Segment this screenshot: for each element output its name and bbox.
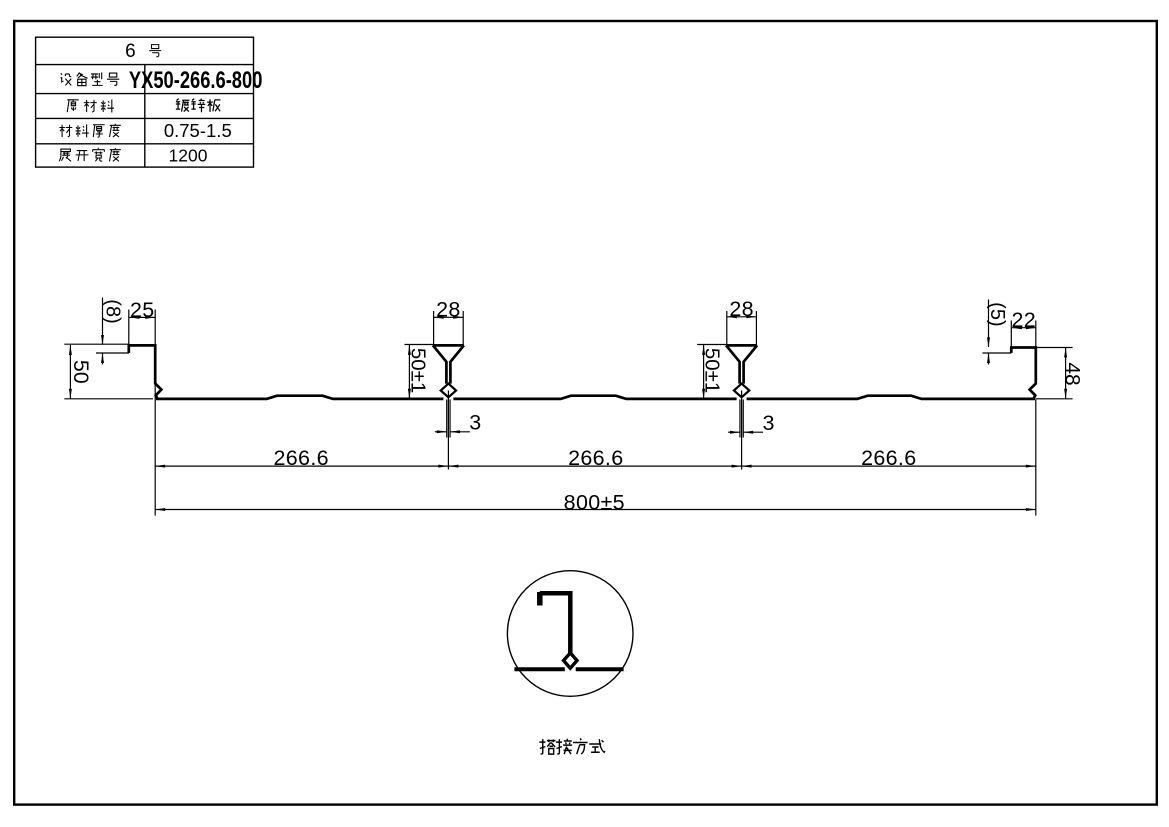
svg-text:0.75-1.5: 0.75-1.5 [164,120,232,141]
svg-text:50: 50 [69,360,93,384]
svg-text:28: 28 [436,298,461,322]
svg-text:6: 6 [125,41,136,62]
svg-text:800±5: 800±5 [564,490,625,514]
svg-text:(5): (5) [986,302,1008,326]
svg-text:25: 25 [130,298,155,322]
svg-text:3: 3 [469,411,481,435]
svg-text:(8): (8) [102,299,124,323]
svg-text:266.6: 266.6 [568,446,623,470]
svg-text:50±1: 50±1 [407,348,430,393]
svg-text:YX50-266.6-800: YX50-266.6-800 [129,67,263,94]
svg-text:266.6: 266.6 [861,446,916,470]
svg-text:3: 3 [762,411,774,435]
svg-text:28: 28 [729,297,754,321]
svg-text:48: 48 [1061,362,1084,385]
svg-text:50±1: 50±1 [701,348,724,393]
svg-text:1200: 1200 [169,145,208,165]
svg-text:22: 22 [1012,308,1037,332]
svg-text:266.6: 266.6 [273,446,328,470]
